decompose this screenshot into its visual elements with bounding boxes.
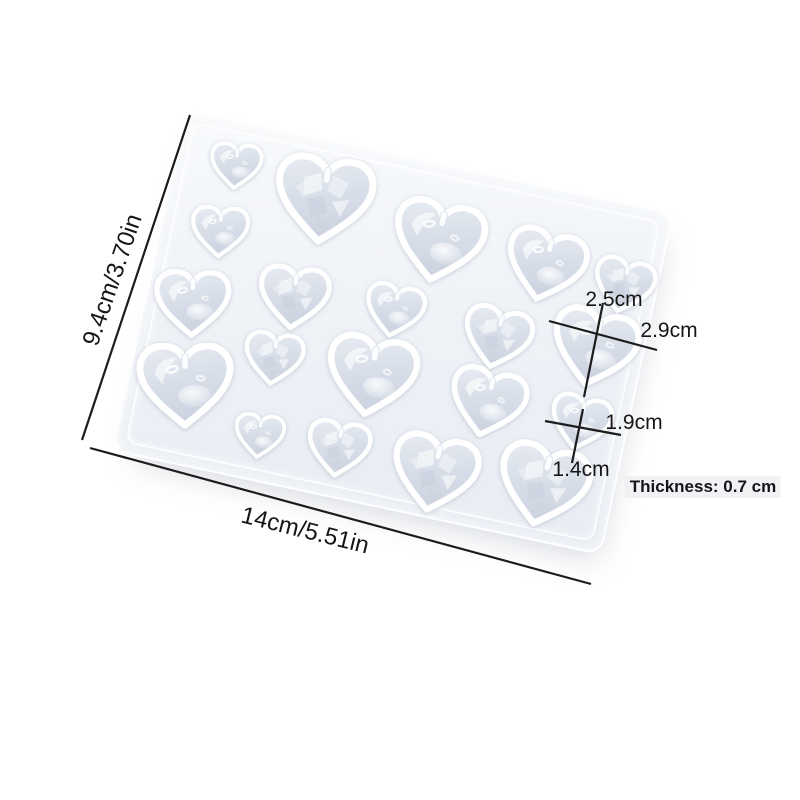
small-heart-height-label: 1.4cm <box>552 458 609 482</box>
large-heart-height-label: 2.5cm <box>585 288 642 312</box>
heart-cavity-smooth <box>231 410 288 463</box>
heart-cavity-smooth <box>136 343 234 431</box>
mold-width-label: 14cm/5.51in <box>238 502 372 561</box>
heart-cavity-faceted <box>301 416 375 485</box>
small-heart-width-label: 1.9cm <box>605 411 662 435</box>
heart-cavity-smooth <box>317 328 424 428</box>
large-heart-width-label: 2.9cm <box>640 319 697 343</box>
heart-cavity-faceted <box>239 328 308 392</box>
heart-cavity-smooth <box>382 192 493 295</box>
heart-cavity-smooth <box>188 204 252 262</box>
product-image: 9.4cm/3.70in 14cm/5.51in 2.5cm 2.9cm 1.9… <box>0 0 800 800</box>
thickness-label: Thickness: 0.7 cm <box>625 476 781 498</box>
mold-cavities <box>112 109 674 555</box>
heart-cavity-faceted <box>253 261 335 336</box>
heart-cavity-smooth <box>207 140 266 194</box>
heart-cavity-faceted <box>267 149 381 254</box>
heart-cavity-smooth <box>152 268 232 341</box>
heart-cavity-faceted <box>382 426 487 524</box>
silicone-mold <box>112 109 674 555</box>
heart-cavity-smooth <box>494 220 595 315</box>
